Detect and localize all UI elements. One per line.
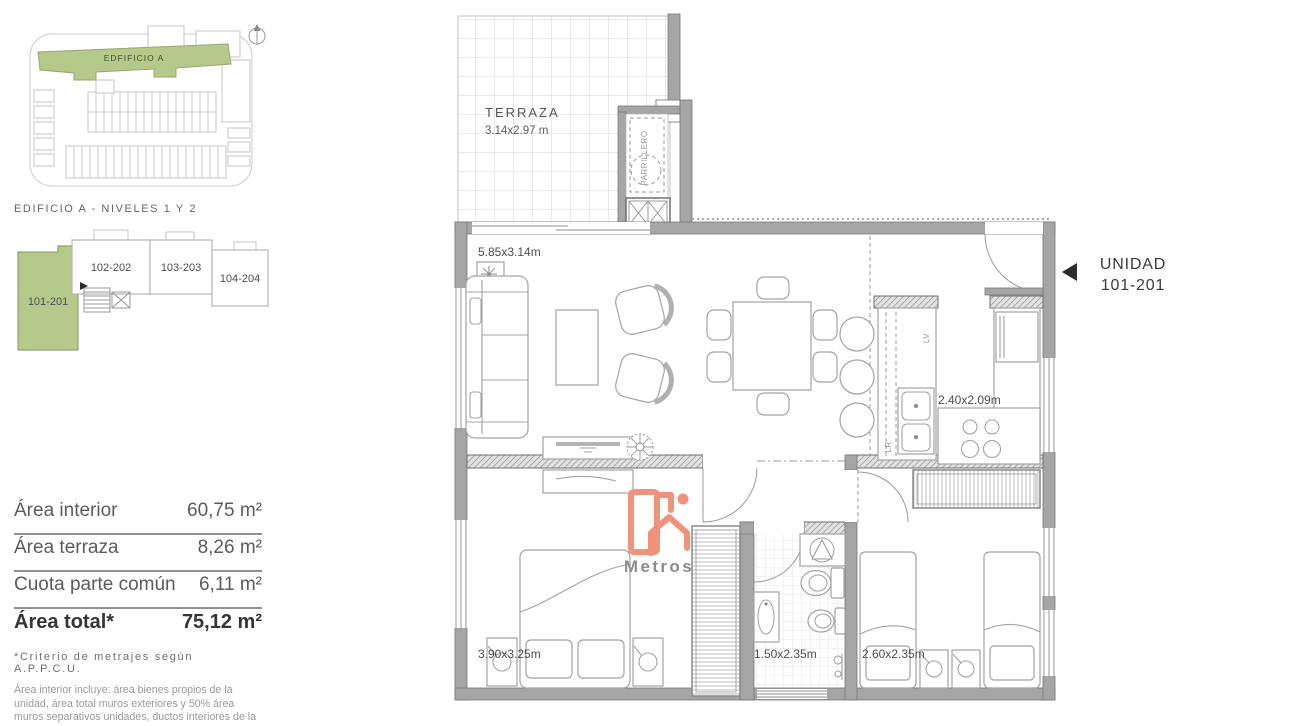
coffee-table [556,310,598,385]
sofa [466,276,528,438]
shower [800,534,845,566]
terraza-dims: 3.14x2.97 m [485,125,548,137]
bedroom-2: 2.60x2.35m [860,470,1040,688]
kitchen-counter-bottom [938,408,1040,464]
area-label: Cuota parte común [14,574,176,596]
area-table: Área interior 60,75 m² Área terraza 8,26… [14,498,262,726]
living-room: 5.85x3.14m [466,245,837,460]
site-block [88,92,216,132]
unit-callout-line1: UNIDAD [1088,255,1178,276]
bedroom2-dims: 2.60x2.35m [862,647,925,661]
kitchen-dims: 2.40x2.09m [938,393,1001,407]
fridge [996,312,1038,362]
bedroom1-door [703,455,757,522]
nightstand [952,650,980,688]
area-label: Área interior [14,500,118,522]
table-row: Área terraza 8,26 m² [14,535,262,572]
parrillero: PARRILLERO [626,114,670,228]
tv-console [543,437,633,459]
sliding-door-terraza [472,222,650,234]
area-value: 8,26 m² [198,537,262,559]
bathroom-dims: 1.50x2.35m [754,647,817,661]
floor-plan: TERRAZA 3.14x2.97 m PARRILLERO [453,14,1057,700]
dishwasher-label: LV [922,333,931,343]
double-bed [520,550,630,688]
key-plan-label-102: 102-202 [91,262,131,274]
window-bathroom-bottom [757,689,827,699]
key-plan: 101-201 102-202 103-203 104-204 [18,230,268,350]
floorplan-page: EDFIFICIO A 101-201 102-202 103-203 104-… [0,0,1313,726]
armchair [613,351,676,407]
area-value: 75,12 m² [182,611,262,634]
dining-set [707,277,837,415]
terraza-label: TERRAZA [485,105,560,120]
parrillero-label: PARRILLERO [640,130,649,185]
entrance-door [985,222,1043,295]
site-building [222,60,250,122]
bathroom: 1.50x2.35m [754,534,845,688]
area-label: Área total* [14,611,114,634]
key-plan-label-104: 104-204 [220,273,260,285]
table-row: Cuota parte común 6,11 m² [14,572,262,609]
site-units-right [228,128,250,166]
vanity [754,592,779,642]
bidet [808,608,845,634]
area-value: 60,75 m² [187,500,262,522]
area-label: Área terraza [14,537,119,559]
dresser [543,470,633,493]
footnote-criteria: *Criterio de metrajes según A.P.P.C.U. [14,651,262,675]
armchair [613,281,676,337]
closet [692,526,740,696]
key-plan-title: EDIFICIO A - NIVELES 1 Y 2 [14,203,197,215]
window-bedroom2-right-1 [1041,528,1057,596]
key-plan-label-103: 103-203 [161,262,201,274]
closet [913,470,1040,508]
site-building-a: EDFIFICIO A [38,44,231,93]
table-row: Área interior 60,75 m² [14,498,262,535]
unit-callout-line2: 101-201 [1088,276,1178,297]
single-bed [860,552,916,688]
window-kitchen-right [1041,358,1057,452]
window-bedroom1-left [453,520,469,628]
area-value: 6,11 m² [199,574,262,596]
compass-icon [249,24,265,45]
bedroom1-dims: 3.90x3.25m [478,647,541,661]
window-bedroom2-right-2 [1041,610,1057,676]
footnote-interior: Área interior incluye: área bienes propi… [14,684,262,726]
toilet [801,568,844,598]
key-plan-label-101: 101-201 [28,296,68,308]
site-units-left [34,90,54,166]
unit-arrow-icon [1062,263,1077,281]
laundry-label: LR [884,441,893,452]
site-building-a-label: EDFIFICIO A [104,53,165,63]
bedroom2-door [845,470,908,522]
living-dims: 5.85x3.14m [478,245,541,259]
site-block [66,146,226,178]
site-plan: EDFIFICIO A [30,24,265,186]
bar-stools [840,317,874,437]
bedroom-1: 3.90x3.25m [478,470,740,696]
nightstand [487,638,517,686]
table-row-total: Área total* 75,12 m² [14,609,262,644]
metros-wordmark: Metros [624,557,694,576]
kitchen-sink [898,388,934,454]
metros-logo-icon [631,492,689,553]
single-bed [984,552,1040,688]
nightstand [633,638,663,686]
unit-callout: UNIDAD 101-201 [1088,255,1178,297]
plant [627,434,653,460]
metros-logo: Metros [624,492,694,576]
